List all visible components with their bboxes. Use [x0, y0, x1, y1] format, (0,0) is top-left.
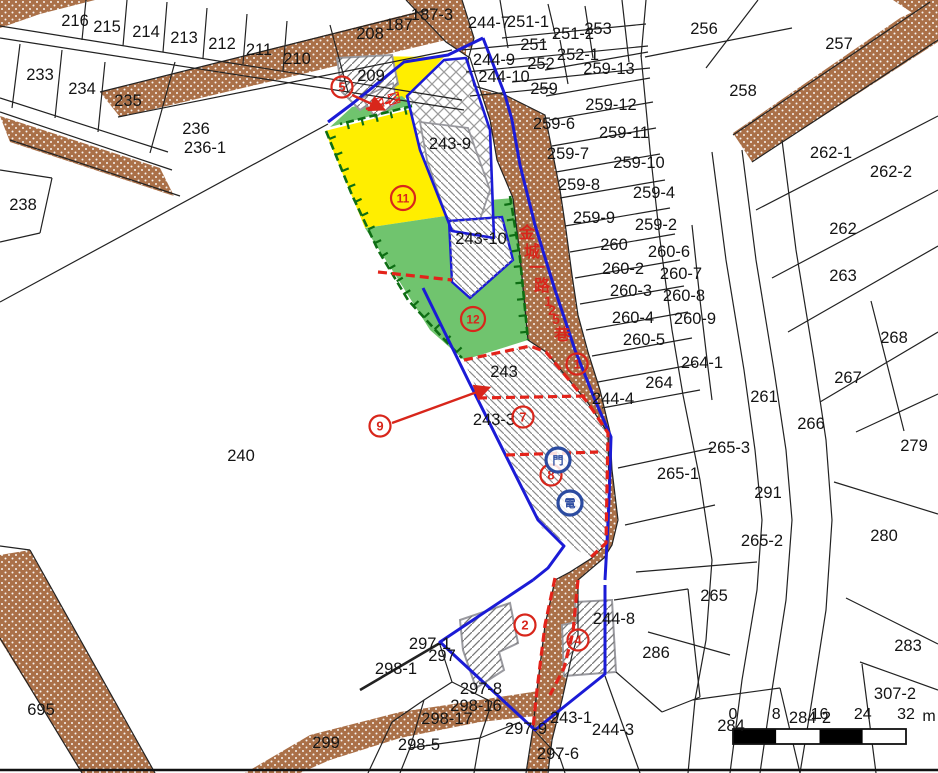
parcel-label-695: 695: [27, 701, 55, 719]
parcel-label-259: 259: [530, 80, 558, 98]
parcel-label-208: 208: [356, 25, 384, 43]
scale-tick-label: 16: [811, 706, 829, 723]
parcel-label-210: 210: [283, 50, 311, 68]
parcel-label-256: 256: [690, 20, 718, 38]
parcel-label-259-6: 259-6: [533, 115, 575, 133]
parcel-label-243: 243: [490, 363, 518, 381]
parcel-label-213: 213: [170, 29, 198, 47]
parcel-label-262-2: 262-2: [870, 163, 912, 181]
parcel-label-279: 279: [900, 437, 928, 455]
parcel-label-244-3: 244-3: [592, 721, 634, 739]
scale-tick-label: 0: [729, 706, 738, 723]
parcel-label-252: 252: [527, 55, 555, 73]
parcel-label-236-1: 236-1: [184, 139, 226, 157]
parcel-label-286: 286: [642, 644, 670, 662]
parcel-label-259-8: 259-8: [558, 176, 600, 194]
parcel-label-240: 240: [227, 447, 255, 465]
parcel-label-187: 187: [385, 16, 413, 34]
parcel-label-244-9: 244-9: [473, 51, 515, 69]
parcel-label-214: 214: [132, 23, 160, 41]
parcel-label-265-1: 265-1: [657, 465, 699, 483]
parcel-label-297-9: 297-9: [505, 720, 547, 738]
parcel-label-260-2: 260-2: [602, 260, 644, 278]
parcel-label-251: 251: [520, 36, 548, 54]
circled-number-9-text: 9: [376, 419, 383, 434]
parcel-label-259-10: 259-10: [613, 154, 664, 172]
subsidy-border-tick: [514, 266, 521, 267]
cadastral-map: 216215214213212211210233234235236236-123…: [0, 0, 938, 773]
scale-tick-label: 32: [897, 706, 915, 723]
parcel-label-211: 211: [246, 41, 272, 59]
parcel-label-216: 216: [61, 12, 89, 30]
parcel-label-280: 280: [870, 527, 898, 545]
circled-number-11-text: 11: [397, 192, 410, 206]
scale-tick-label: 8: [772, 706, 781, 723]
parcel-label-257: 257: [825, 35, 853, 53]
parcel-label-298-1: 298-1: [375, 660, 417, 678]
scale-seg-4: [863, 729, 906, 744]
parcel-label-244-7: 244-7: [468, 14, 510, 32]
parcel-label-259-11: 259-11: [599, 124, 649, 142]
parcel-label-259-12: 259-12: [585, 96, 636, 114]
subsidy-border-tick: [504, 204, 511, 205]
parcel-label-236: 236: [182, 120, 210, 138]
parcel-label-283: 283: [894, 637, 922, 655]
parcel-label-298-17: 298-17: [421, 710, 472, 728]
parcel-label-260-7: 260-7: [660, 265, 702, 283]
parcel-label-260-9: 260-9: [674, 310, 716, 328]
subsidy-border-tick: [515, 283, 522, 284]
parcel-label-243-1: 243-1: [550, 709, 592, 727]
parcel-label-251-2: 251-2: [552, 25, 594, 43]
parcel-label-260-8: 260-8: [663, 287, 705, 305]
parcel-label-244-8: 244-8: [593, 610, 635, 628]
scale-seg-3: [820, 729, 863, 744]
circled-number-2-text: 2: [521, 618, 528, 633]
parcel-label-260-3: 260-3: [610, 282, 652, 300]
road-name-char: 一: [529, 260, 545, 277]
parcel-label-235: 235: [114, 92, 142, 110]
subsidy-border-tick: [509, 235, 516, 236]
parcel-label-259-13: 259-13: [583, 60, 634, 78]
parcel-label-243-10: 243-10: [455, 230, 506, 248]
parcel-label-233: 233: [26, 66, 54, 84]
parcel-label-259-9: 259-9: [573, 209, 615, 227]
parcel-label-259-7: 259-7: [547, 145, 589, 163]
parcel-label-268: 268: [880, 329, 908, 347]
parcel-label-264-1: 264-1: [681, 354, 723, 372]
parcel-label-244-4: 244-4: [592, 390, 634, 408]
utility-marker-text: 門: [553, 454, 564, 467]
road-name-char: 巷: [553, 325, 571, 344]
subsidy-border-tick: [517, 299, 524, 300]
parcel-label-266: 266: [797, 415, 825, 433]
subsidy-border-tick: [512, 250, 519, 251]
parcel-label-297-6: 297-6: [537, 745, 579, 763]
subsidy-border-tick: [520, 332, 527, 333]
cadastral-map-stage: 216215214213212211210233234235236236-123…: [0, 0, 938, 773]
circled-number-4-text: 4: [574, 633, 582, 648]
parcel-label-260: 260: [600, 236, 628, 254]
utility-marker-text: 電: [565, 497, 576, 510]
parcel-label-259-2: 259-2: [635, 216, 677, 234]
parcel-label-264: 264: [645, 374, 673, 392]
subsidy-border-tick: [507, 219, 514, 220]
parcel-label-260-6: 260-6: [648, 243, 690, 261]
parcel-label-260-5: 260-5: [623, 331, 665, 349]
parcel-label-298-5: 298-5: [398, 736, 440, 754]
road-name-char: 5: [552, 311, 560, 327]
parcel-label-307-2: 307-2: [874, 685, 916, 703]
parcel-label-263: 263: [829, 267, 857, 285]
parcel-label-187-3: 187-3: [411, 6, 453, 24]
parcel-label-258: 258: [729, 82, 757, 100]
parcel-label-244-10: 244-10: [478, 68, 529, 86]
parcel-label-265-2: 265-2: [741, 532, 783, 550]
parcel-label-234: 234: [68, 80, 96, 98]
parcel-label-259-4: 259-4: [633, 184, 675, 202]
parcel-label-260-4: 260-4: [612, 309, 654, 327]
road-name-char: 城: [524, 243, 540, 261]
parcel-label-261: 261: [750, 388, 778, 406]
parcel-label-267: 267: [834, 369, 862, 387]
scale-tick-label: 24: [854, 706, 872, 723]
road-name-char: 金: [518, 223, 536, 242]
scale-unit-label: m: [922, 708, 935, 725]
scale-seg-2: [776, 729, 819, 744]
subsidy-border-tick: [519, 315, 526, 316]
parcel-label-262-1: 262-1: [810, 144, 852, 162]
parcel-label-265: 265: [700, 587, 728, 605]
parcel-label-251-1: 251-1: [507, 13, 549, 31]
parcel-label-297-8: 297-8: [460, 680, 502, 698]
parcel-label-265-3: 265-3: [708, 439, 750, 457]
circled-number-1-text: 1: [573, 357, 580, 372]
parcel-label-243-3: 243-3: [473, 411, 515, 429]
parcel-label-243-9: 243-9: [429, 135, 471, 153]
circled-number-5-text: 5: [338, 80, 345, 95]
circled-number-7-text: 7: [519, 410, 526, 425]
parcel-label-297: 297: [428, 647, 456, 665]
parcel-label-299: 299: [312, 734, 340, 752]
parcel-label-209: 209: [357, 67, 385, 85]
circled-number-12-text: 12: [466, 313, 480, 327]
parcel-label-215: 215: [93, 18, 121, 36]
parcel-label-238: 238: [9, 196, 37, 214]
parcel-label-291: 291: [754, 484, 782, 502]
parcel-label-212: 212: [208, 35, 236, 53]
scale-bar: [733, 729, 906, 744]
parcel-label-262: 262: [829, 220, 857, 238]
